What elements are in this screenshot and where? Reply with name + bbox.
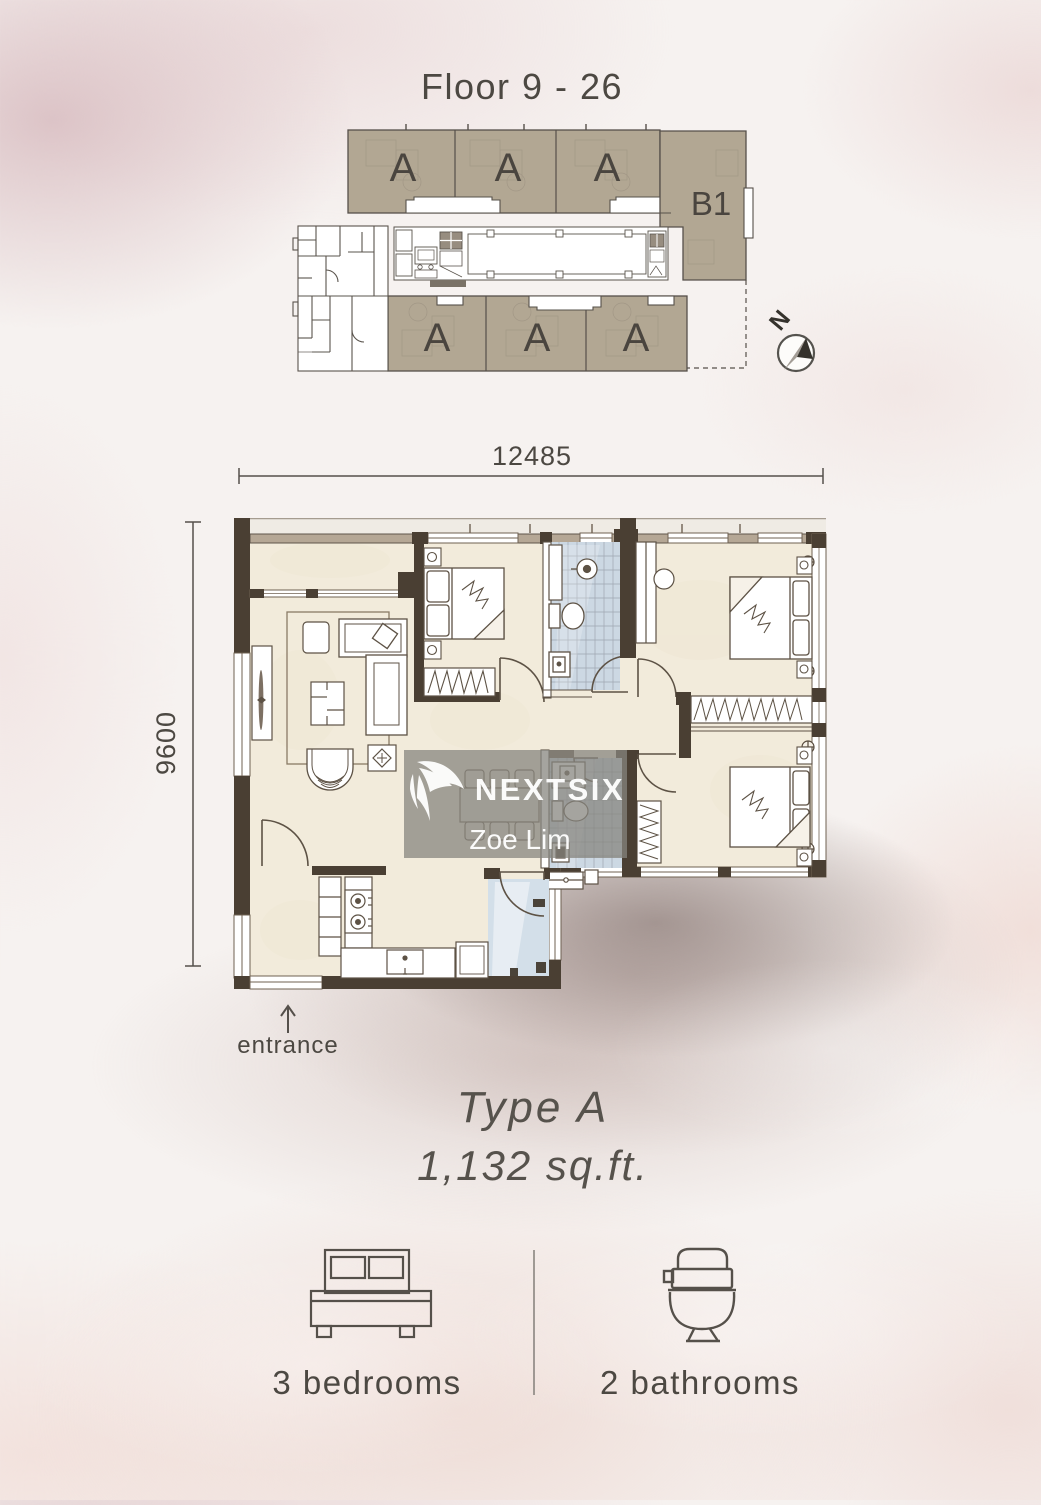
svg-text:Type A: Type A — [457, 1083, 610, 1132]
svg-text:A: A — [495, 146, 522, 190]
svg-text:A: A — [390, 146, 417, 190]
svg-text:NEXTSIX: NEXTSIX — [475, 772, 625, 807]
svg-text:entrance: entrance — [237, 1032, 338, 1059]
svg-text:1,132 sq.ft.: 1,132 sq.ft. — [417, 1142, 649, 1189]
svg-text:9600: 9600 — [151, 711, 181, 775]
svg-text:B1: B1 — [691, 185, 731, 222]
svg-text:A: A — [623, 316, 650, 360]
svg-text:3 bedrooms: 3 bedrooms — [272, 1364, 461, 1401]
svg-text:Floor 9 - 26: Floor 9 - 26 — [421, 66, 623, 107]
svg-text:A: A — [524, 316, 551, 360]
svg-text:A: A — [594, 146, 621, 190]
svg-text:12485: 12485 — [492, 441, 572, 471]
svg-text:N: N — [764, 305, 796, 336]
svg-text:Zoe Lim: Zoe Lim — [469, 824, 570, 855]
svg-text:A: A — [424, 316, 451, 360]
svg-text:2 bathrooms: 2 bathrooms — [600, 1364, 800, 1401]
